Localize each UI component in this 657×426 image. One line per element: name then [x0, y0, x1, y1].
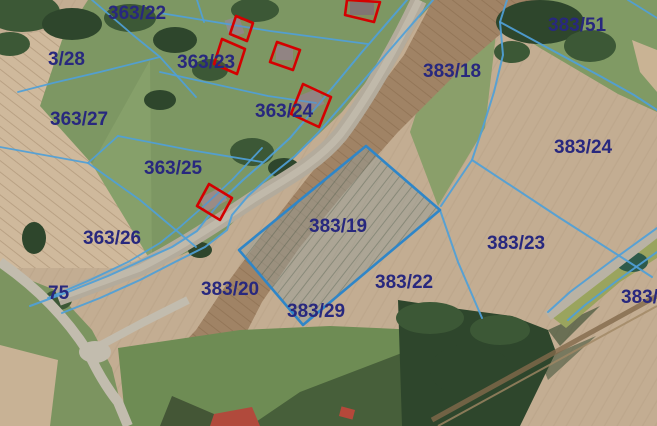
parcel-label-75: 75	[48, 283, 70, 304]
parcel-label-383-29: 383/29	[287, 301, 345, 322]
parcel-label-383-24: 383/24	[554, 137, 613, 158]
parcel-label-363-23: 363/23	[177, 52, 235, 73]
parcel-label-3-28: 3/28	[48, 49, 85, 70]
map-viewport[interactable]: 363/22 3/28 363/27 363/23 363/24 363/25 …	[0, 0, 657, 426]
parcel-label-383-19: 383/19	[309, 216, 367, 237]
parcel-label-383-partial: 383/	[621, 287, 657, 308]
parcel-label-383-23: 383/23	[487, 233, 545, 254]
parcel-label-383-22: 383/22	[375, 272, 433, 293]
parcel-label-363-24: 363/24	[255, 101, 314, 122]
parcel-label-363-25: 363/25	[144, 158, 203, 179]
parcel-label-363-27: 363/27	[50, 109, 108, 130]
parcel-label-363-22: 363/22	[108, 3, 166, 24]
parcel-label-363-26: 363/26	[83, 228, 141, 249]
parcel-label-383-51: 383/51	[548, 15, 607, 36]
parcel-label-383-20: 383/20	[201, 279, 259, 300]
parcel-label-383-18: 383/18	[423, 61, 481, 82]
cadastral-map[interactable]: 363/22 3/28 363/27 363/23 363/24 363/25 …	[0, 0, 657, 426]
